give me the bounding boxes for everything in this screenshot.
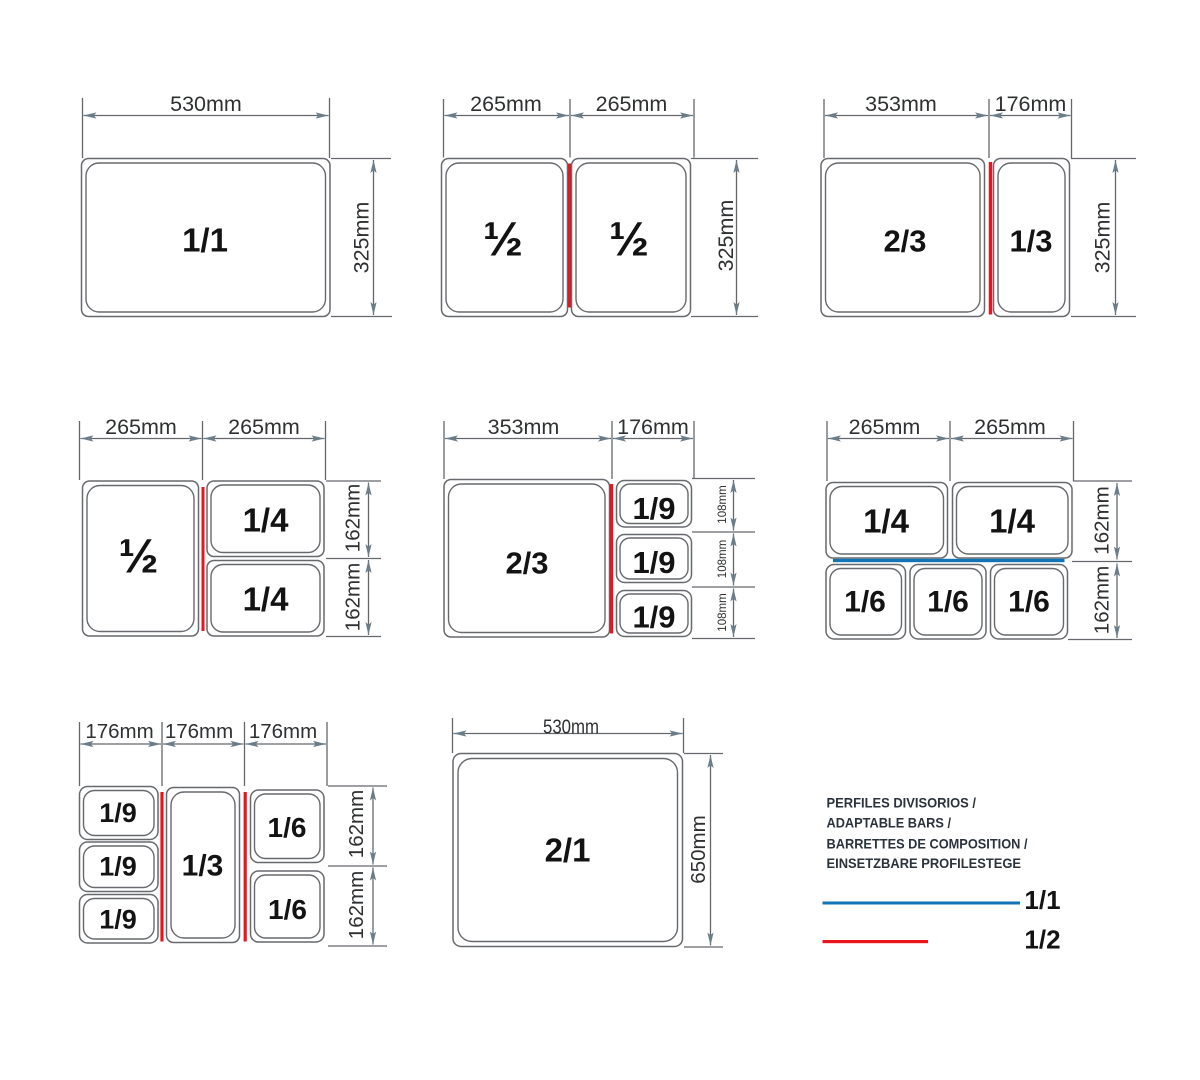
- svg-text:2/3: 2/3: [883, 224, 926, 259]
- svg-text:1/6: 1/6: [268, 812, 307, 843]
- svg-text:108mm: 108mm: [717, 485, 729, 523]
- svg-text:1/9: 1/9: [99, 905, 137, 935]
- svg-text:1/9: 1/9: [632, 545, 675, 580]
- svg-text:530mm: 530mm: [543, 715, 599, 738]
- svg-text:1/9: 1/9: [99, 798, 137, 828]
- svg-text:265mm: 265mm: [974, 415, 1046, 439]
- svg-text:1/9: 1/9: [99, 852, 137, 882]
- svg-text:1/9: 1/9: [632, 491, 675, 526]
- svg-text:176mm: 176mm: [617, 415, 689, 439]
- svg-text:1/1: 1/1: [182, 222, 228, 259]
- svg-text:1/4: 1/4: [863, 503, 910, 540]
- svg-text:162mm: 162mm: [345, 790, 368, 858]
- svg-text:2/1: 2/1: [545, 832, 591, 869]
- svg-text:½: ½: [483, 214, 523, 267]
- svg-text:½: ½: [609, 214, 649, 267]
- svg-text:162mm: 162mm: [1091, 486, 1114, 554]
- svg-text:BARRETTES DE COMPOSITION /: BARRETTES DE COMPOSITION /: [827, 836, 1028, 852]
- svg-text:1/6: 1/6: [927, 586, 969, 619]
- svg-text:1/4: 1/4: [243, 502, 290, 539]
- svg-text:265mm: 265mm: [228, 415, 300, 439]
- svg-text:353mm: 353mm: [488, 415, 560, 439]
- svg-text:530mm: 530mm: [170, 92, 242, 116]
- svg-text:ADAPTABLE BARS /: ADAPTABLE BARS /: [827, 815, 952, 831]
- svg-text:1/6: 1/6: [844, 586, 886, 619]
- svg-text:1/6: 1/6: [268, 894, 307, 925]
- svg-text:PERFILES DIVISORIOS /: PERFILES DIVISORIOS /: [827, 795, 977, 811]
- svg-text:325mm: 325mm: [714, 200, 738, 272]
- svg-text:325mm: 325mm: [1091, 202, 1115, 274]
- svg-text:1/6: 1/6: [1008, 586, 1050, 619]
- svg-text:265mm: 265mm: [849, 415, 921, 439]
- svg-text:176mm: 176mm: [85, 720, 153, 743]
- svg-text:108mm: 108mm: [717, 540, 729, 578]
- svg-text:265mm: 265mm: [596, 92, 668, 116]
- svg-text:176mm: 176mm: [995, 92, 1067, 116]
- svg-text:1/2: 1/2: [1024, 925, 1060, 955]
- svg-text:1/4: 1/4: [243, 581, 290, 618]
- svg-text:162mm: 162mm: [342, 484, 365, 552]
- svg-text:108mm: 108mm: [717, 593, 729, 631]
- svg-text:265mm: 265mm: [105, 415, 177, 439]
- svg-text:162mm: 162mm: [342, 563, 365, 631]
- svg-text:1/9: 1/9: [632, 600, 675, 635]
- svg-text:353mm: 353mm: [865, 92, 937, 116]
- svg-text:162mm: 162mm: [345, 871, 368, 939]
- svg-text:1/1: 1/1: [1024, 885, 1060, 915]
- svg-text:1/3: 1/3: [1009, 224, 1052, 259]
- svg-text:650mm: 650mm: [687, 815, 710, 883]
- svg-text:EINSETZBARE PROFILESTEGE: EINSETZBARE PROFILESTEGE: [827, 855, 1022, 871]
- svg-text:162mm: 162mm: [1091, 566, 1114, 634]
- svg-text:265mm: 265mm: [470, 92, 542, 116]
- svg-text:1/3: 1/3: [182, 850, 224, 883]
- svg-text:325mm: 325mm: [350, 202, 374, 274]
- svg-text:176mm: 176mm: [165, 720, 233, 743]
- svg-text:2/3: 2/3: [505, 546, 548, 581]
- svg-text:176mm: 176mm: [249, 720, 317, 743]
- svg-text:1/4: 1/4: [989, 503, 1036, 540]
- svg-text:½: ½: [118, 531, 158, 584]
